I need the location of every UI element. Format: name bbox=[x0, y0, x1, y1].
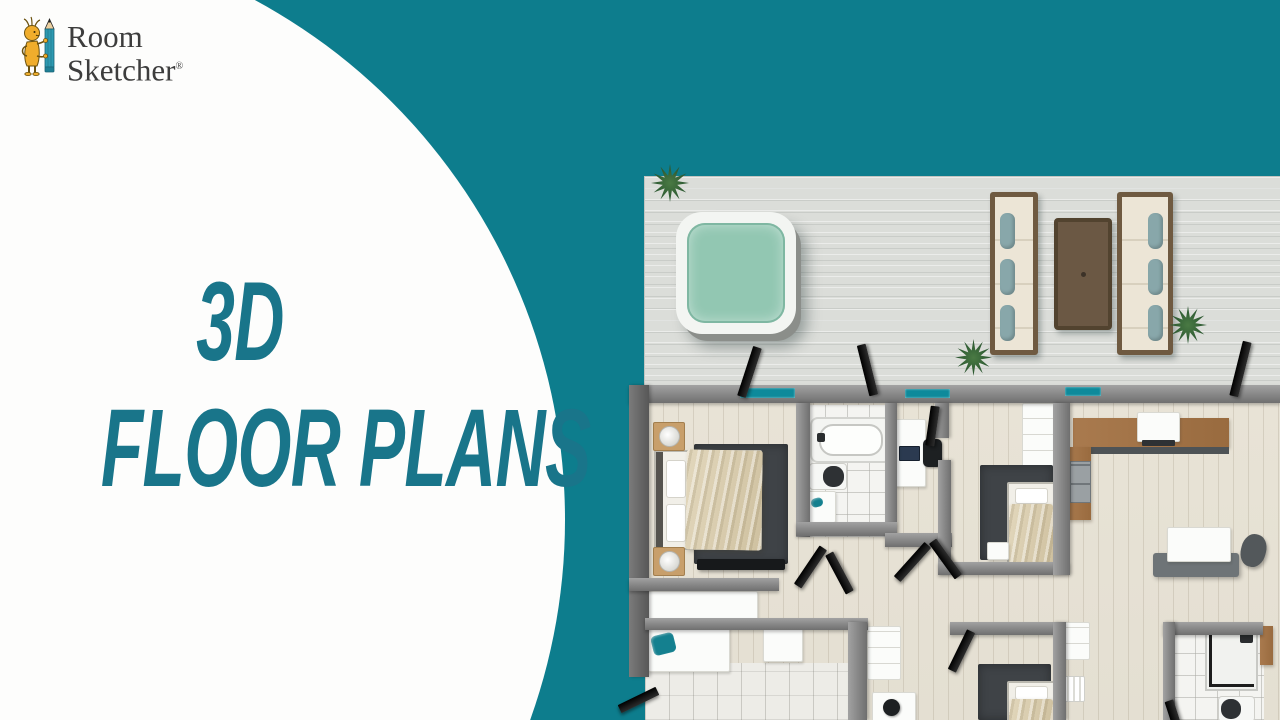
cooktop bbox=[1142, 440, 1175, 446]
sideboard bbox=[697, 559, 785, 570]
bed-duvet bbox=[1009, 504, 1053, 564]
nightstand bbox=[987, 542, 1009, 560]
shower bbox=[1205, 627, 1258, 691]
hot-tub-water bbox=[687, 223, 785, 323]
kitchen-sink-module bbox=[1070, 461, 1091, 503]
nightstand bbox=[653, 422, 685, 451]
deck-wall bbox=[629, 385, 1280, 403]
wall bbox=[645, 618, 868, 630]
appliance-box bbox=[763, 626, 803, 662]
bed-pillow bbox=[666, 460, 686, 498]
sofa-pillow bbox=[1000, 305, 1015, 341]
roomsketcher-logo: Room Sketcher® bbox=[20, 16, 250, 86]
laptop bbox=[899, 446, 920, 461]
logo-word-top: Room bbox=[67, 22, 183, 52]
table-umbrella-hole bbox=[1081, 272, 1086, 277]
hot-tub bbox=[676, 212, 796, 334]
logo-word-bottom: Sketcher® bbox=[67, 52, 183, 85]
logo-wordmark: Room Sketcher® bbox=[67, 22, 183, 85]
headline-line1: 3D bbox=[91, 266, 389, 378]
wall bbox=[629, 578, 779, 591]
thumbnail-canvas: 3D FLOOR PLANS Room bbox=[0, 0, 1280, 720]
floor-plan-render bbox=[620, 160, 1280, 720]
exterior-wall-left bbox=[629, 385, 649, 677]
wall bbox=[796, 403, 810, 537]
table-lamp bbox=[659, 551, 680, 572]
laundry-counter bbox=[645, 591, 758, 621]
sofa-pillow bbox=[1148, 213, 1163, 249]
bathtub bbox=[810, 417, 892, 463]
bed-pillow bbox=[1015, 686, 1048, 700]
bed-pillow bbox=[1015, 488, 1048, 504]
sink-basin bbox=[810, 497, 824, 509]
pencil-mascot-icon bbox=[20, 16, 62, 78]
wall bbox=[848, 622, 867, 720]
headline-line2: FLOOR PLANS bbox=[101, 394, 444, 504]
toilet bbox=[809, 463, 847, 490]
toilet bbox=[1218, 696, 1255, 720]
bed-duvet bbox=[1009, 699, 1053, 720]
nightstand bbox=[653, 547, 685, 576]
patio-glass-door bbox=[1065, 387, 1101, 396]
outdoor-sofa-right bbox=[1117, 192, 1173, 355]
bathtub-faucet bbox=[817, 433, 825, 442]
registered-mark: ® bbox=[175, 61, 183, 72]
sofa-pillow bbox=[1148, 259, 1163, 295]
wall bbox=[1163, 622, 1263, 635]
bathroom-sink bbox=[806, 491, 836, 523]
sofa-pillow bbox=[1000, 213, 1015, 249]
sofa-pillow bbox=[1148, 305, 1163, 341]
toilet-lid bbox=[823, 466, 844, 487]
master-double-bed bbox=[654, 450, 762, 550]
closet-doors bbox=[867, 626, 901, 680]
patio-glass-door bbox=[905, 389, 950, 398]
kitchen-counter-edge bbox=[1088, 447, 1229, 454]
wall bbox=[885, 403, 897, 537]
table-lamp bbox=[659, 426, 680, 447]
bathtub-basin bbox=[819, 424, 883, 456]
wardrobe bbox=[1022, 403, 1057, 467]
sofa-pillow bbox=[1000, 259, 1015, 295]
desk-chair bbox=[883, 699, 900, 716]
wall bbox=[1053, 622, 1066, 720]
living-sofa-seat bbox=[1167, 527, 1231, 562]
outdoor-coffee-table bbox=[1054, 218, 1112, 330]
wall bbox=[1053, 403, 1070, 575]
single-bed bbox=[1007, 482, 1055, 566]
bed-headboard bbox=[656, 452, 663, 548]
bed-duvet bbox=[685, 449, 763, 550]
outdoor-sofa-left bbox=[990, 192, 1038, 355]
kitchen-range bbox=[1137, 412, 1180, 442]
wall bbox=[796, 522, 897, 536]
bed-pillow bbox=[666, 504, 686, 542]
toilet-lid bbox=[1221, 699, 1241, 719]
single-bed bbox=[1007, 681, 1055, 720]
